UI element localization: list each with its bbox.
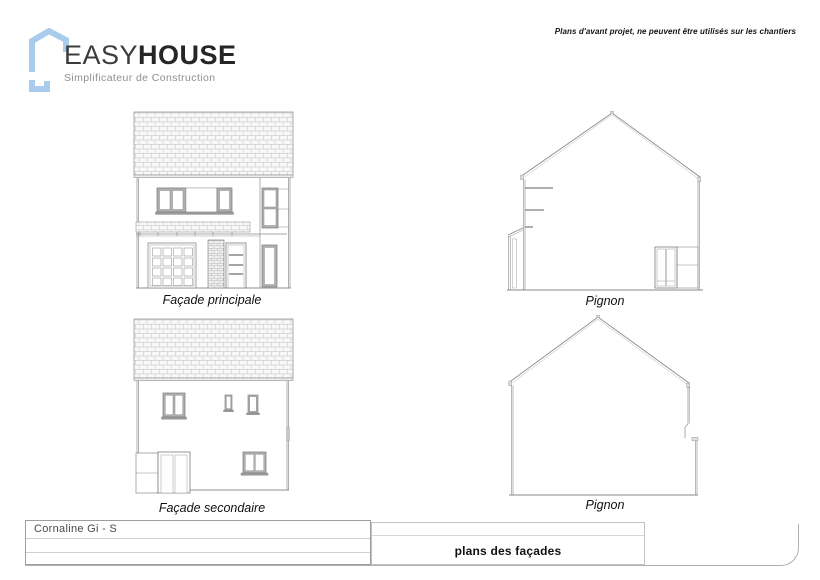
upper-small-window-2 <box>247 395 260 415</box>
ground-floor-window <box>241 452 268 475</box>
disclaimer-notice: Plans d'avant projet, ne peuvent être ut… <box>555 27 796 36</box>
logo-tagline: Simplificateur de Construction <box>64 72 237 84</box>
upper-small-window-1 <box>224 395 234 412</box>
pignon-bottom-drawing <box>500 310 710 510</box>
facade-principale-drawing <box>127 108 297 294</box>
title-block-sheet: plans des façades <box>371 522 645 565</box>
garage-door <box>148 243 196 288</box>
title-block-subrow <box>372 523 644 536</box>
sheet-title: plans des façades <box>372 536 644 565</box>
entry-door <box>226 243 246 288</box>
pignon-bottom-label: Pignon <box>500 498 710 512</box>
plan-sheet: EASYHOUSE Simplificateur de Construction… <box>0 0 820 580</box>
logo-text: EASYHOUSE Simplificateur de Construction <box>64 40 237 84</box>
project-name: Cornaline Gi - S <box>26 521 370 539</box>
gable-roof-outline <box>509 315 690 387</box>
title-block-project: Cornaline Gi - S <box>25 520 371 565</box>
gable-roof-outline <box>521 111 701 181</box>
lean-to <box>508 228 523 290</box>
floor-level-marks <box>525 188 553 227</box>
stair-window <box>262 188 289 228</box>
pignon-top-label: Pignon <box>500 294 710 308</box>
facade-secondaire-drawing <box>127 315 297 501</box>
facade-secondaire-label: Façade secondaire <box>127 501 297 515</box>
ground-corner-unit <box>136 452 190 493</box>
logo-word-house: HOUSE <box>138 40 237 70</box>
logo-word-easy: EASY <box>64 40 138 70</box>
roof-tiled <box>134 112 293 178</box>
roof-tiled <box>134 319 293 381</box>
easyhouse-logo: EASYHOUSE Simplificateur de Construction <box>20 26 240 96</box>
gable-walls <box>509 386 698 496</box>
facade-principale-label: Façade principale <box>127 293 297 307</box>
brick-pillar <box>208 240 224 288</box>
title-block-empty-row <box>26 539 370 553</box>
ground-floor-window <box>262 245 277 287</box>
upper-double-window <box>162 393 187 419</box>
rear-door-unit <box>655 247 698 288</box>
upper-window-ensemble <box>156 188 234 214</box>
pignon-top-drawing <box>500 105 710 305</box>
